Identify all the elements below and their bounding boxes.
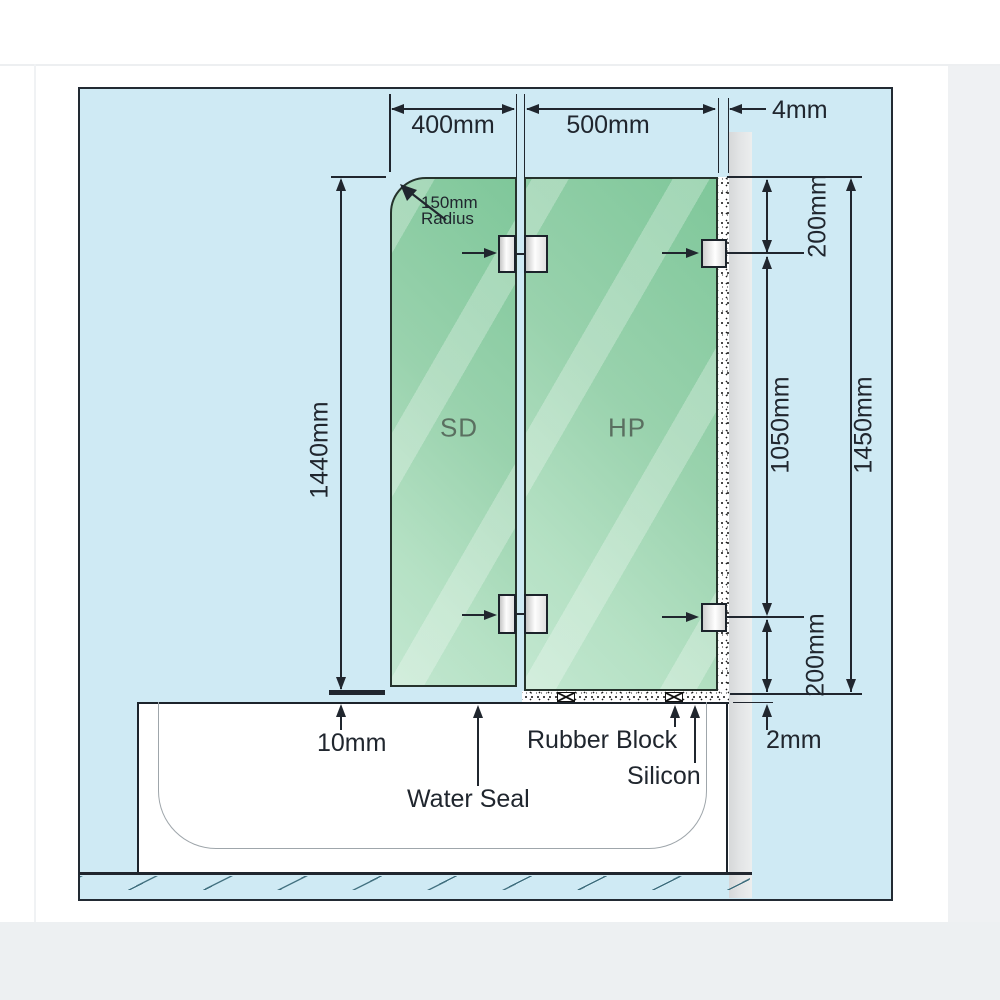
- rubber-block-right: [665, 692, 683, 702]
- right-baseline: [730, 693, 862, 695]
- callout-line-water-seal: [477, 713, 479, 786]
- arrowhead: [526, 104, 539, 114]
- dim-line-1440mm: [340, 180, 342, 689]
- dim-line-500mm: [527, 108, 715, 110]
- bracket-reference-line-top: [727, 252, 804, 254]
- dim-label-2mm: 2mm: [766, 726, 822, 755]
- dim-label-200mm-bottom: 200mm: [802, 613, 831, 696]
- panel-label-sd: SD: [440, 413, 478, 444]
- dim-label-200mm-top: 200mm: [804, 174, 833, 257]
- arrowhead: [846, 679, 856, 692]
- dim-label-10mm: 10mm: [317, 729, 386, 758]
- arrowhead: [484, 248, 497, 258]
- arrowhead: [762, 603, 772, 616]
- arrowhead: [762, 179, 772, 192]
- dim-label-500mm: 500mm: [566, 111, 649, 140]
- right-top-reference-line: [727, 176, 862, 178]
- dim-line-400mm: [392, 108, 514, 110]
- dim-label-400mm: 400mm: [411, 111, 494, 140]
- arrowhead: [686, 612, 699, 622]
- wall: [729, 132, 752, 898]
- hinge-bottom-left-plate: [498, 594, 516, 634]
- extension-line-glass-right: [718, 98, 720, 173]
- door-bottom-reference-bar: [329, 690, 385, 695]
- bracket-reference-line-bottom: [727, 616, 804, 618]
- dim-label-1440mm: 1440mm: [306, 401, 335, 498]
- wall-bracket-bottom-arrow-line: [662, 616, 688, 618]
- dim-label-1450mm: 1450mm: [850, 376, 879, 473]
- arrowhead: [762, 619, 772, 632]
- arrowhead: [336, 677, 346, 690]
- dim-label-1050mm: 1050mm: [767, 376, 796, 473]
- hinge-top-right-plate: [524, 235, 548, 273]
- extension-line-joint-right: [524, 94, 526, 178]
- hinge-bottom-right-plate: [524, 594, 548, 634]
- arrowhead: [846, 178, 856, 191]
- hinge-top-left-plate: [498, 235, 516, 273]
- callout-label-silicon: Silicon: [627, 762, 701, 791]
- radius-note: 150mm Radius: [421, 195, 478, 227]
- wall-bracket-top-arrow-line: [662, 252, 688, 254]
- bath-screen-installation-diagram: { "colors": { "ink": "#20262e", "canvas-…: [0, 0, 1000, 1000]
- arrowhead: [729, 104, 742, 114]
- arrowhead: [391, 104, 404, 114]
- hinge-bottom-arrow-line: [462, 614, 486, 616]
- arrowhead: [502, 104, 515, 114]
- page-frame-line-horizontal: [0, 64, 1000, 66]
- arrowhead: [484, 610, 497, 620]
- wall-bracket-bottom: [701, 603, 727, 632]
- radius-note-line2: Radius: [421, 211, 478, 227]
- rubber-block-left: [557, 692, 575, 702]
- floor-line: [79, 872, 752, 875]
- arrowhead: [762, 679, 772, 692]
- callout-line-rubber-block: [674, 713, 676, 727]
- floor-hatching: [80, 876, 750, 890]
- hinge-bottom-pin: [516, 613, 524, 615]
- panel-label-hp: HP: [608, 413, 646, 444]
- callout-label-rubber-block: Rubber Block: [527, 726, 677, 755]
- hinge-top-arrow-line: [462, 252, 486, 254]
- page-band-bottom: [0, 922, 1000, 1000]
- extension-line-joint-left: [516, 94, 518, 178]
- arrowhead: [336, 178, 346, 191]
- wall-bracket-top: [701, 239, 727, 268]
- callout-line-10mm: [340, 712, 342, 730]
- page-band-right: [948, 66, 1000, 922]
- page-frame-line-vertical: [34, 64, 36, 922]
- callout-label-water-seal: Water Seal: [407, 785, 530, 814]
- arrowhead: [762, 240, 772, 253]
- arrowhead: [762, 256, 772, 269]
- hinge-top-pin: [516, 253, 524, 255]
- silicon-strip-bottom: [522, 691, 729, 702]
- bathtub-right-edge: [726, 702, 728, 874]
- bathtub-inner-rim: [158, 702, 707, 849]
- arrowhead: [703, 104, 716, 114]
- dim-label-4mm: 4mm: [772, 96, 828, 125]
- callout-line-silicon: [694, 713, 696, 763]
- arrowhead: [686, 248, 699, 258]
